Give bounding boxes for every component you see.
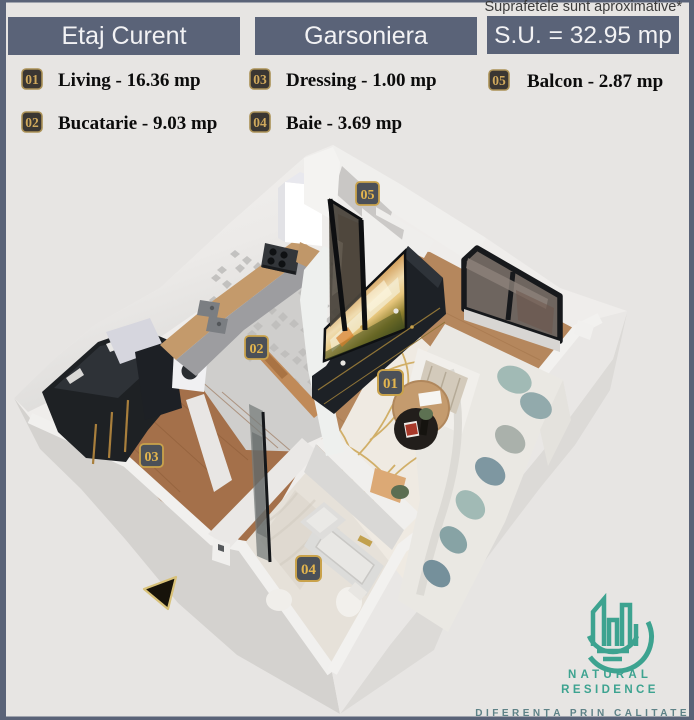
svg-text:Dressing - 1.00 mp: Dressing - 1.00 mp xyxy=(286,70,437,91)
svg-text:Suprafetele sunt aproximative*: Suprafetele sunt aproximative* xyxy=(485,0,683,15)
svg-text:03: 03 xyxy=(253,72,267,87)
svg-text:Bucatarie - 9.03 mp: Bucatarie - 9.03 mp xyxy=(58,113,217,134)
svg-text:Garsoniera: Garsoniera xyxy=(304,22,428,50)
svg-text:05: 05 xyxy=(361,188,375,203)
svg-text:Living - 16.36 mp: Living - 16.36 mp xyxy=(58,70,201,91)
svg-text:S.U. = 32.95 mp: S.U. = 32.95 mp xyxy=(494,22,672,49)
svg-text:RESIDENCE: RESIDENCE xyxy=(561,684,659,696)
svg-text:Balcon - 2.87 mp: Balcon - 2.87 mp xyxy=(527,71,663,92)
svg-text:NATURAL: NATURAL xyxy=(568,669,652,681)
svg-text:Etaj Curent: Etaj Curent xyxy=(61,22,186,50)
svg-text:DIFERENȚA PRIN CALITATE: DIFERENȚA PRIN CALITATE xyxy=(475,708,690,719)
svg-text:01: 01 xyxy=(383,376,398,392)
svg-text:01: 01 xyxy=(25,72,39,87)
svg-text:02: 02 xyxy=(250,342,264,357)
svg-text:04: 04 xyxy=(301,562,317,578)
svg-text:05: 05 xyxy=(492,73,506,88)
svg-text:04: 04 xyxy=(253,115,267,130)
svg-text:Baie - 3.69 mp: Baie - 3.69 mp xyxy=(286,113,402,134)
svg-text:02: 02 xyxy=(25,115,39,130)
svg-text:03: 03 xyxy=(145,450,159,465)
